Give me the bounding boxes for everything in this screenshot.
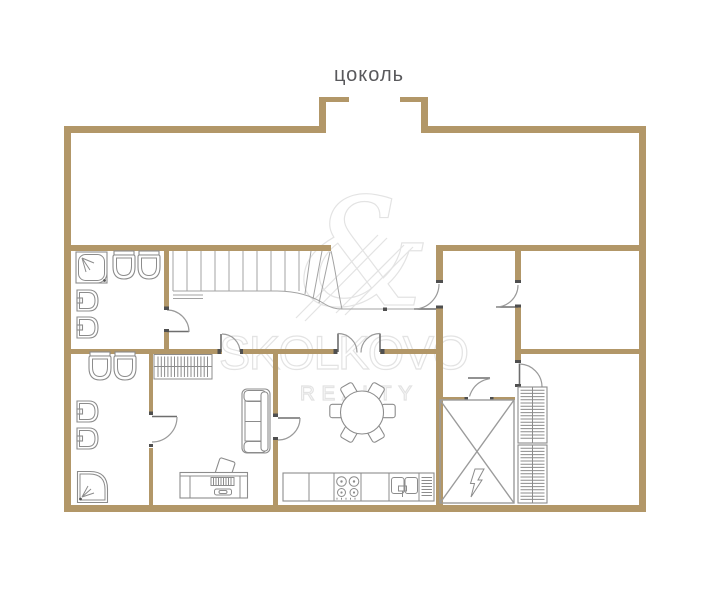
- door-bathroom1: [167, 310, 189, 332]
- radiator-shelf: [154, 355, 212, 380]
- door-bathroom2: [152, 417, 177, 443]
- shelving-unit: [518, 387, 547, 503]
- corner-shower: [78, 472, 108, 503]
- bathroom2-fixtures: [77, 352, 136, 503]
- bathroom1-fixtures: [76, 251, 160, 338]
- lightning-symbol: [471, 469, 485, 497]
- shower-door-dot: [103, 279, 106, 282]
- door-living-to-kitchen: [278, 418, 300, 440]
- shower-door-dot: [79, 498, 82, 501]
- sink: [77, 401, 98, 422]
- sofa: [242, 389, 270, 453]
- sink: [77, 428, 98, 449]
- dining-table: [341, 391, 384, 434]
- toilet: [138, 251, 160, 279]
- desk: [180, 473, 248, 499]
- stair-base-lines: [173, 295, 203, 299]
- sink: [77, 317, 98, 338]
- door-hall-to-room: [496, 285, 518, 307]
- sink: [77, 290, 98, 311]
- toilet: [113, 251, 135, 279]
- floor-plan-page: цоколь & SKOLKOVO REALTY: [0, 0, 720, 600]
- toilet: [114, 352, 136, 380]
- watermark-ampersand-logo: &: [298, 167, 432, 341]
- floor-plan-svg: цоколь & SKOLKOVO REALTY: [0, 0, 720, 600]
- door-storage-x-room: [468, 378, 490, 397]
- kitchen-counter: [283, 473, 434, 501]
- floor-title: цоколь: [334, 64, 404, 86]
- storage-x-room: [440, 400, 514, 503]
- toilet: [89, 352, 111, 380]
- dish-rack: [422, 478, 433, 496]
- shower-cabin: [76, 252, 107, 283]
- door-hall-to-storeroom: [520, 364, 543, 388]
